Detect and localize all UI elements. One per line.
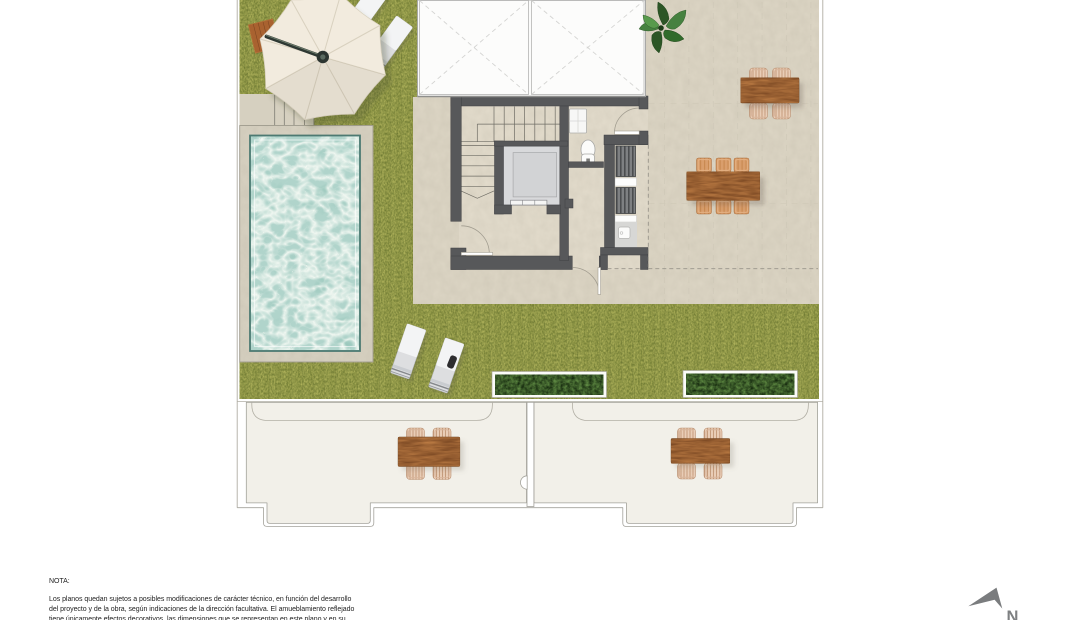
svg-text:N: N bbox=[1007, 608, 1019, 620]
